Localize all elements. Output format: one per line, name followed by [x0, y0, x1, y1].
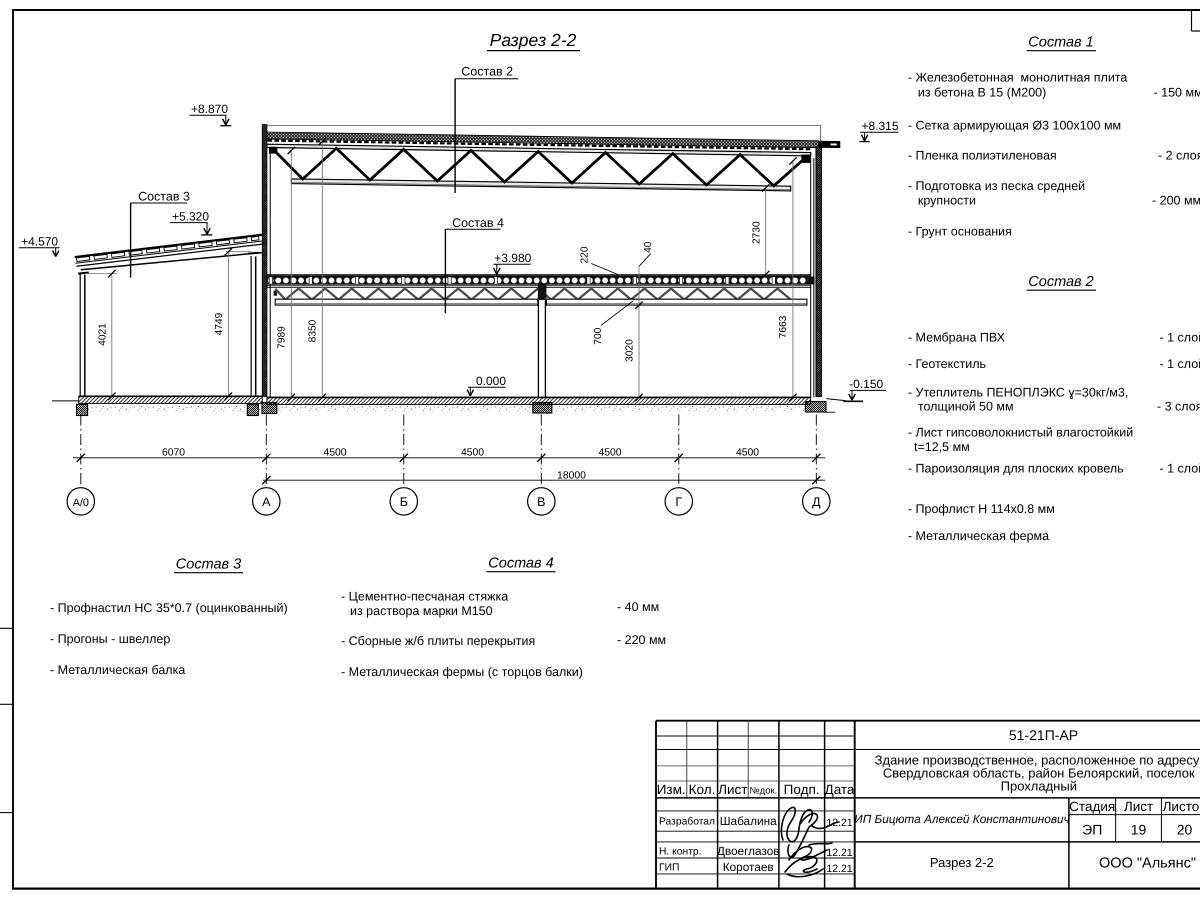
svg-text:51-21П-АР: 51-21П-АР [1009, 727, 1078, 743]
svg-text:- 2 слоя: - 2 слоя [1158, 149, 1200, 163]
svg-text:Двоеглазов: Двоеглазов [717, 844, 780, 858]
svg-text:- Пароизоляция для плоских кро: - Пароизоляция для плоских кровель [908, 462, 1124, 476]
svg-text:ИП Бицюта Алексей Константинов: ИП Бицюта Алексей Константинович [854, 812, 1069, 826]
svg-text:- Утеплитель ПЕНОПЛЭКС ɣ=30кг/: - Утеплитель ПЕНОПЛЭКС ɣ=30кг/м3, [908, 386, 1128, 400]
svg-text:из раствора марки М150: из раствора марки М150 [350, 604, 493, 618]
svg-text:0.000: 0.000 [476, 374, 506, 388]
svg-text:6070: 6070 [162, 448, 185, 459]
svg-text:- 220 мм: - 220 мм [617, 633, 666, 647]
svg-text:- Профлист Н 114х0.8 мм: - Профлист Н 114х0.8 мм [908, 502, 1055, 516]
svg-text:18000: 18000 [557, 470, 586, 481]
svg-text:Шабалина: Шабалина [720, 814, 777, 828]
svg-text:Коротаев: Коротаев [723, 860, 774, 874]
svg-text:t=12,5 мм: t=12,5 мм [914, 440, 970, 454]
svg-text:- Профнастил НС 35*0.7 (оцинко: - Профнастил НС 35*0.7 (оцинкованный) [50, 601, 288, 615]
svg-text:Дата: Дата [825, 782, 855, 797]
svg-text:4500: 4500 [323, 448, 346, 459]
svg-text:- 40 мм: - 40 мм [617, 600, 659, 614]
svg-text:4749: 4749 [214, 312, 225, 335]
svg-text:Г: Г [675, 495, 682, 509]
svg-text:- Подготовка из песка средней: - Подготовка из песка средней [908, 179, 1085, 193]
svg-text:крупности: крупности [918, 194, 976, 208]
svg-text:Н. контр.: Н. контр. [659, 847, 702, 858]
svg-text:- Металлическая ферма: - Металлическая ферма [908, 529, 1049, 543]
svg-text:из бетона В 15 (М200): из бетона В 15 (М200) [918, 86, 1046, 100]
svg-text:- 1 слой: - 1 слой [1160, 331, 1200, 345]
svg-text:- Железобетонная монолитная п: - Железобетонная монолитная плита [908, 71, 1127, 85]
svg-text:- Сетка армирующая Ø3 100x100: - Сетка армирующая Ø3 100x100 мм [908, 119, 1121, 133]
svg-text:А/0: А/0 [73, 497, 89, 509]
svg-text:7989: 7989 [276, 326, 287, 349]
svg-text:12.21: 12.21 [826, 863, 852, 875]
svg-text:- Металлическая фермы (с торцо: - Металлическая фермы (с торцов балки) [341, 665, 583, 679]
svg-text:4500: 4500 [736, 448, 759, 459]
svg-text:- 150 мм: - 150 мм [1154, 86, 1200, 100]
svg-text:- 3 слоя: - 3 слоя [1157, 400, 1200, 414]
svg-text:- Металлическая балка: - Металлическая балка [50, 663, 185, 677]
svg-text:+8.870: +8.870 [191, 102, 228, 116]
svg-text:- Лист гипсоволокнистый влагос: - Лист гипсоволокнистый влагостойкий [908, 426, 1133, 440]
svg-text:Изм.: Изм. [657, 782, 686, 797]
svg-text:Состав 2: Состав 2 [461, 65, 513, 79]
svg-text:Лист: Лист [718, 782, 747, 797]
svg-text:40: 40 [643, 241, 654, 253]
svg-text:+3.980: +3.980 [494, 251, 531, 265]
svg-text:- Сборные ж/б плиты перекрытия: - Сборные ж/б плиты перекрытия [341, 634, 535, 648]
svg-text:- Грунт основания: - Грунт основания [908, 225, 1012, 239]
svg-text:В: В [537, 495, 545, 509]
svg-text:Д: Д [812, 495, 821, 509]
svg-text:220: 220 [580, 246, 591, 263]
svg-text:Состав 4: Состав 4 [452, 216, 504, 230]
svg-text:4500: 4500 [461, 448, 484, 459]
svg-text:Б: Б [400, 495, 408, 509]
svg-text:12.21: 12.21 [826, 847, 852, 859]
svg-text:Состав 4: Состав 4 [488, 556, 553, 572]
svg-text:3020: 3020 [625, 339, 636, 362]
svg-text:20: 20 [1177, 822, 1193, 838]
svg-text:+4.570: +4.570 [21, 235, 58, 249]
svg-text:700: 700 [593, 327, 604, 344]
svg-text:- Пленка полиэтиленовая: - Пленка полиэтиленовая [908, 149, 1057, 163]
svg-text:Листов: Листов [1163, 799, 1200, 814]
svg-text:- 1 слой: - 1 слой [1160, 357, 1200, 371]
svg-text:+5.320: +5.320 [172, 209, 209, 223]
svg-text:Кол.: Кол. [689, 782, 716, 797]
svg-text:ЭП: ЭП [1082, 822, 1102, 838]
svg-text:-0.150: -0.150 [849, 377, 883, 391]
svg-text:Состав 3: Состав 3 [176, 557, 241, 573]
svg-text:7663: 7663 [778, 315, 789, 338]
svg-text:Прохладный: Прохладный [1001, 779, 1077, 794]
svg-text:Состав 2: Состав 2 [1028, 274, 1093, 290]
svg-text:- Геотекстиль: - Геотекстиль [908, 357, 986, 371]
svg-text:Подп.: Подп. [784, 782, 820, 797]
svg-text:8350: 8350 [308, 319, 319, 342]
svg-text:Состав 3: Состав 3 [138, 190, 190, 204]
svg-text:- Прогоны - швеллер: - Прогоны - швеллер [50, 632, 170, 646]
svg-text:Стадия: Стадия [1069, 799, 1115, 814]
svg-text:4021: 4021 [98, 323, 109, 346]
svg-text:+8.315: +8.315 [861, 119, 898, 133]
svg-text:19: 19 [1131, 822, 1147, 838]
svg-text:№док.: №док. [749, 785, 777, 796]
svg-text:2730: 2730 [751, 221, 762, 244]
svg-text:- 1 слой: - 1 слой [1160, 462, 1200, 476]
svg-text:ГИП: ГИП [659, 863, 679, 874]
svg-text:- Цементно-песчаная стяжка: - Цементно-песчаная стяжка [341, 590, 508, 604]
svg-text:- 200 мм: - 200 мм [1152, 194, 1200, 208]
svg-text:Состав 1: Состав 1 [1028, 35, 1093, 51]
svg-text:12.21: 12.21 [826, 817, 852, 829]
svg-text:ООО "Альянс": ООО "Альянс" [1099, 856, 1196, 872]
svg-text:Разрез 2-2: Разрез 2-2 [490, 30, 577, 50]
svg-text:- Мембрана ПВХ: - Мембрана ПВХ [908, 331, 1006, 345]
svg-text:4500: 4500 [598, 448, 621, 459]
svg-text:А: А [262, 495, 271, 509]
svg-text:Лист: Лист [1124, 799, 1153, 814]
svg-text:Разрез 2-2: Разрез 2-2 [930, 855, 994, 870]
svg-text:Разработал: Разработал [659, 817, 715, 828]
svg-text:толщиной 50 мм: толщиной 50 мм [918, 400, 1014, 414]
